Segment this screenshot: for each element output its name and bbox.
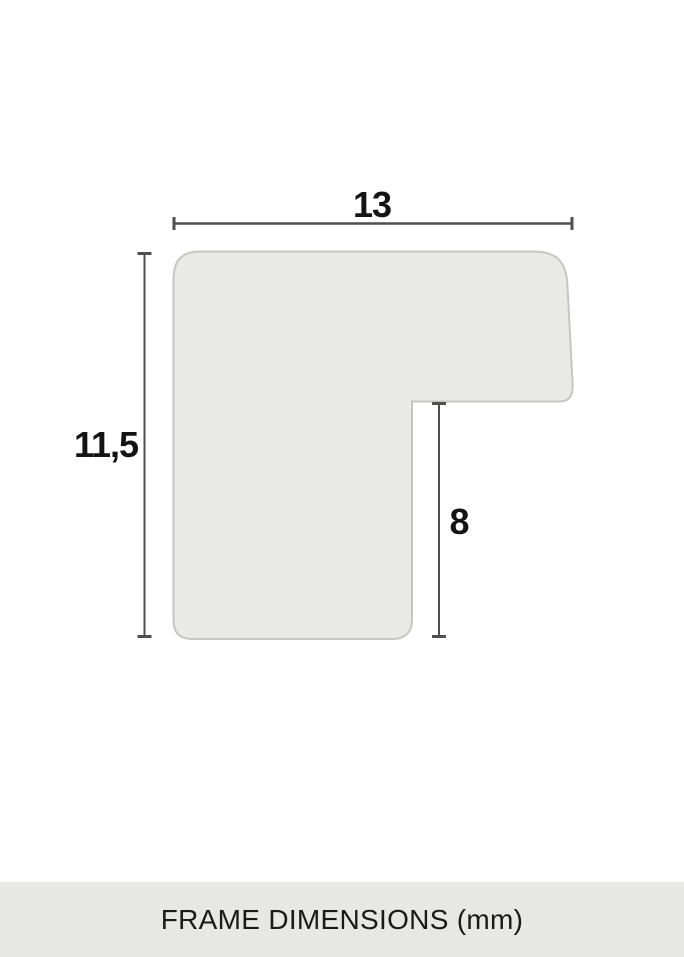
frame-profile-shape (174, 252, 573, 640)
height-dimension (138, 254, 152, 637)
rabbet-depth-dimension (432, 404, 446, 637)
frame-dimension-diagram: 13 11,5 8 FRAME DIMENSIONS (mm) (0, 0, 684, 957)
footer-caption: FRAME DIMENSIONS (mm) (161, 904, 524, 936)
width-dimension-value: 13 (353, 184, 391, 225)
height-dimension-value: 11,5 (74, 424, 139, 465)
footer-bar: FRAME DIMENSIONS (mm) (0, 882, 684, 957)
rabbet-dimension-value: 8 (449, 501, 468, 542)
diagram-canvas: 13 11,5 8 (0, 0, 684, 882)
